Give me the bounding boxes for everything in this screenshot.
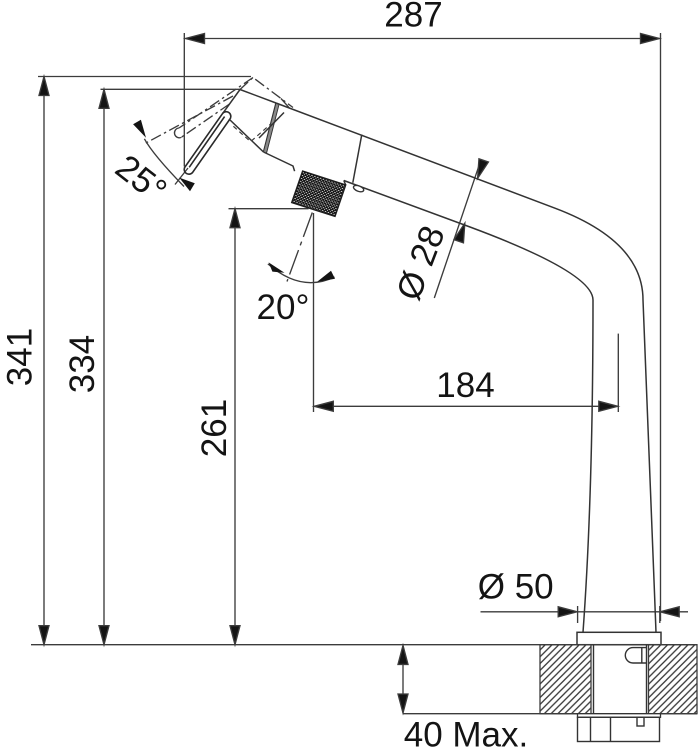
svg-text:40 Max.: 40 Max. — [404, 716, 529, 750]
svg-text:25°: 25° — [108, 147, 174, 210]
svg-text:261: 261 — [195, 399, 234, 457]
svg-text:341: 341 — [1, 328, 40, 386]
svg-text:184: 184 — [436, 366, 494, 405]
svg-text:334: 334 — [63, 335, 102, 393]
svg-text:Ø 50: Ø 50 — [478, 568, 554, 607]
svg-text:20°: 20° — [257, 288, 310, 327]
svg-text:287: 287 — [384, 0, 442, 35]
svg-text:Ø 28: Ø 28 — [389, 221, 453, 306]
